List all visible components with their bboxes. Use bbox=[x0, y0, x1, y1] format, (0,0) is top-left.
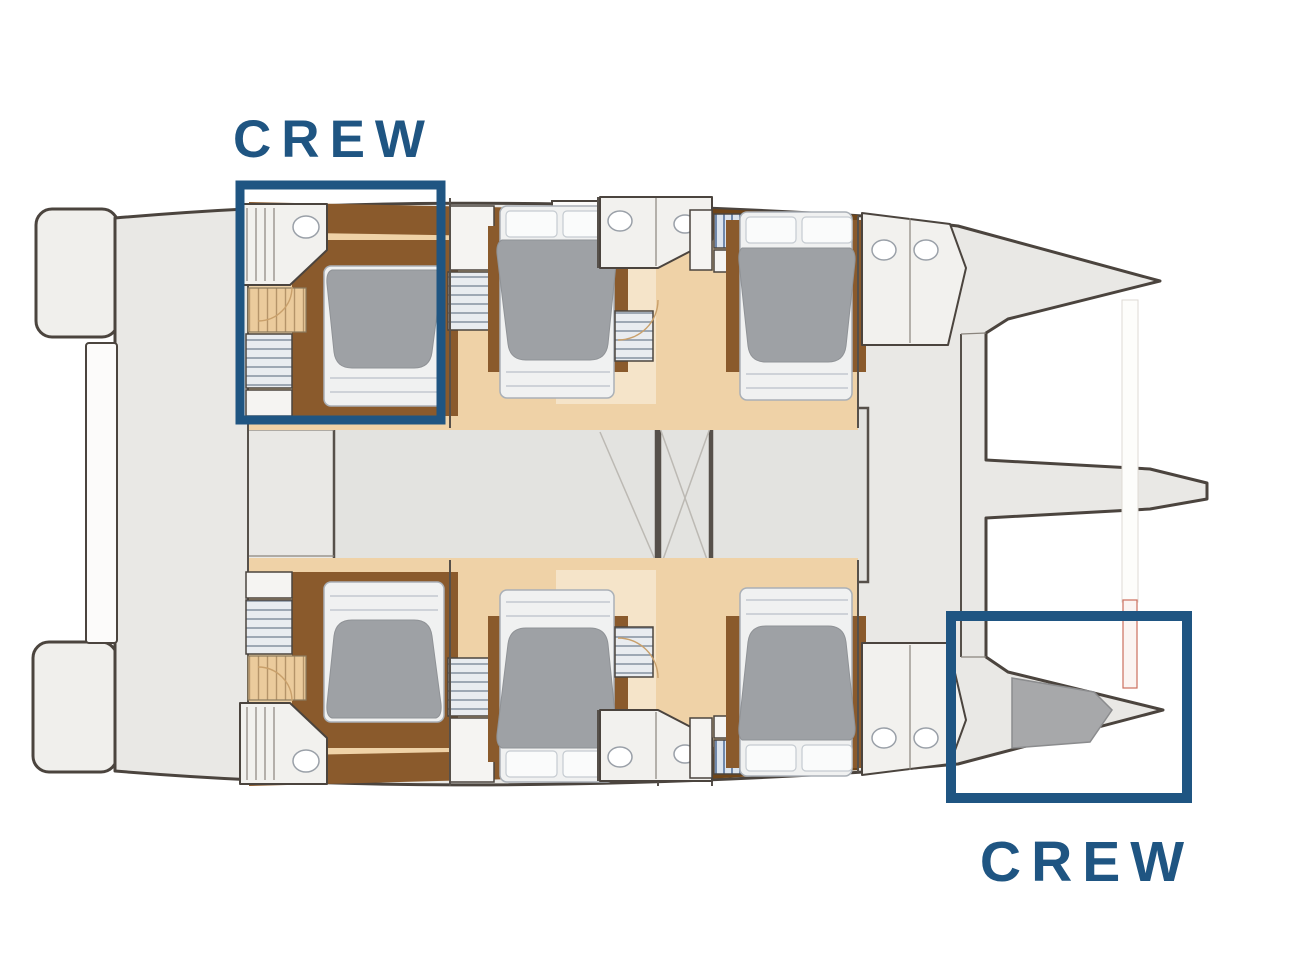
bed bbox=[739, 212, 855, 400]
crew-label-bottom: CREW bbox=[980, 830, 1194, 894]
toilet-icon bbox=[293, 750, 319, 772]
companionway-stairs bbox=[248, 656, 306, 700]
companionway-stairs bbox=[248, 288, 306, 332]
bow-details bbox=[1012, 678, 1112, 748]
starboard-hull-cabins bbox=[240, 558, 966, 786]
sink-icon bbox=[914, 728, 938, 748]
cabinet bbox=[246, 572, 292, 598]
cabinet bbox=[246, 390, 292, 416]
boat-plan-page: CREW CREW bbox=[0, 0, 1305, 978]
crew-label-top: CREW bbox=[233, 110, 435, 169]
port-hull-cabins bbox=[240, 197, 966, 430]
transom-passerelle bbox=[86, 343, 117, 643]
dresser bbox=[615, 627, 653, 677]
sink-icon bbox=[872, 728, 896, 748]
wardrobe bbox=[246, 334, 292, 388]
salon-room-right bbox=[712, 408, 868, 582]
bed bbox=[324, 582, 444, 722]
forestay-line bbox=[1122, 300, 1138, 602]
bathroom bbox=[862, 213, 966, 345]
crew-bow-locker bbox=[1012, 678, 1112, 748]
swim-platform-starboard bbox=[33, 642, 117, 772]
cabinet bbox=[450, 206, 494, 270]
bed bbox=[739, 588, 855, 776]
wardrobe bbox=[246, 600, 292, 654]
swim-platform-port bbox=[36, 209, 118, 337]
cabinet bbox=[450, 718, 494, 782]
sink-icon bbox=[872, 240, 896, 260]
bed bbox=[324, 266, 444, 406]
catamaran-deck-plan: CREW CREW bbox=[0, 0, 1305, 978]
dresser bbox=[615, 311, 653, 361]
toilet-icon bbox=[608, 747, 632, 767]
toilet-icon bbox=[293, 216, 319, 238]
cabinet bbox=[690, 718, 712, 778]
wardrobe bbox=[448, 658, 494, 716]
toilet-icon bbox=[608, 211, 632, 231]
sink-icon bbox=[914, 240, 938, 260]
cabinet bbox=[690, 210, 712, 270]
wardrobe bbox=[448, 272, 494, 330]
